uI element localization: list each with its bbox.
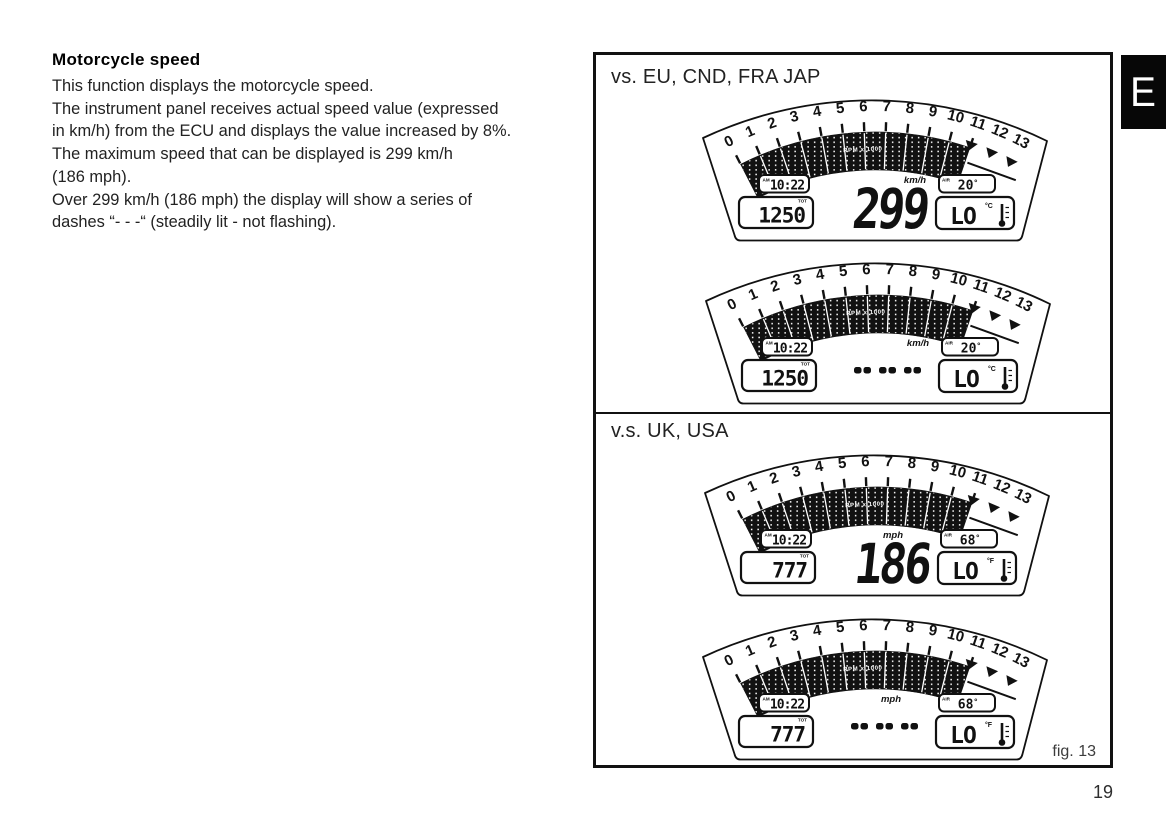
tach-marker-triangle bbox=[986, 666, 998, 677]
tach-scale-number: 6 bbox=[859, 98, 868, 115]
tach-tick bbox=[932, 290, 934, 299]
tach-tick bbox=[844, 479, 845, 488]
tach-scale-number: 9 bbox=[927, 622, 938, 640]
tach-tick bbox=[759, 309, 762, 317]
language-tab-label: E bbox=[1131, 68, 1157, 116]
tach-scale-number: 3 bbox=[788, 108, 800, 127]
instrument-panel: 012345678910111213RPM x 1000AM10:22TOT12… bbox=[704, 257, 1052, 407]
air-temp-label: AIR bbox=[944, 533, 953, 538]
tach-scale-number: 0 bbox=[724, 295, 739, 314]
speed-dash-segment bbox=[876, 723, 884, 730]
tach-scale-number: 0 bbox=[721, 651, 736, 670]
tach-scale-number: 10 bbox=[949, 269, 969, 290]
tach-scale-number: 9 bbox=[927, 103, 938, 121]
tach-scale-number: 10 bbox=[946, 106, 966, 127]
tach-scale-number: 10 bbox=[948, 461, 968, 482]
tach-tick bbox=[777, 138, 780, 147]
tach-scale-number: 7 bbox=[882, 617, 891, 634]
tach-scale-number: 1 bbox=[745, 477, 759, 496]
tach-scale-number: 2 bbox=[767, 469, 780, 488]
tach-marker-triangle bbox=[988, 502, 1000, 513]
tach-tick bbox=[736, 674, 740, 682]
tach-tick bbox=[798, 132, 800, 141]
tach-scale-number: 11 bbox=[971, 276, 991, 297]
speed-dash-segment bbox=[864, 367, 872, 374]
tach-tick bbox=[907, 643, 908, 652]
tach-scale-number: 8 bbox=[908, 263, 918, 281]
tach-marker-triangle bbox=[989, 310, 1001, 321]
tach-scale-number: 10 bbox=[946, 625, 966, 646]
tach-scale-number: 1 bbox=[743, 641, 757, 660]
clock-meridiem-label: AM bbox=[765, 533, 772, 538]
instrument-panel: 012345678910111213RPM x 1000AM10:22TOT77… bbox=[701, 613, 1049, 763]
clock-time: 10:22 bbox=[770, 179, 804, 194]
tach-tick bbox=[931, 482, 933, 491]
tach-scale-number: 9 bbox=[930, 266, 941, 284]
tach-tick bbox=[777, 657, 780, 666]
clock-meridiem-label: AM bbox=[763, 178, 770, 183]
tach-scale-number: 11 bbox=[970, 468, 990, 489]
speed-dash-segment bbox=[851, 723, 859, 730]
coolant-temp-value: LO bbox=[950, 723, 976, 749]
tach-scale-number: 11 bbox=[968, 632, 988, 653]
tach-scale-number: 8 bbox=[905, 100, 915, 118]
tach-tick bbox=[758, 501, 761, 509]
clock-time: 10:22 bbox=[770, 698, 804, 713]
tach-marker-triangle bbox=[1006, 156, 1017, 167]
coolant-temp-unit: °C bbox=[985, 202, 993, 210]
speed-dash-segment bbox=[879, 367, 887, 374]
tach-scale-number: 7 bbox=[882, 98, 891, 115]
section-divider bbox=[596, 412, 1110, 414]
tach-scale-number: 4 bbox=[813, 458, 825, 476]
odometer-value: 777 bbox=[770, 723, 805, 747]
tach-tick bbox=[820, 127, 822, 136]
tach-tick bbox=[801, 295, 803, 304]
odometer-value: 1250 bbox=[761, 367, 808, 391]
speed-unit-label: km/h bbox=[907, 338, 929, 349]
tach-tick bbox=[950, 132, 952, 141]
tach-tick bbox=[929, 646, 931, 655]
section-title-eu: vs. EU, CND, FRA JAP bbox=[611, 66, 821, 89]
tach-scale-number: 11 bbox=[968, 113, 988, 134]
clock-time: 10:22 bbox=[773, 342, 807, 357]
speed-value: 299 bbox=[849, 178, 930, 242]
tach-marker-triangle bbox=[986, 147, 998, 158]
air-temp-label: AIR bbox=[942, 697, 951, 702]
clock-meridiem-label: AM bbox=[766, 341, 773, 346]
tach-marker-triangle bbox=[1008, 511, 1019, 522]
speed-dash-segment bbox=[861, 723, 869, 730]
tach-scale-number: 8 bbox=[907, 455, 917, 473]
coolant-temp-value: LO bbox=[953, 367, 979, 393]
section-title-uk: v.s. UK, USA bbox=[611, 420, 729, 443]
tach-scale-number: 3 bbox=[790, 463, 802, 482]
tach-tick bbox=[822, 482, 824, 491]
odometer-value: 1250 bbox=[758, 204, 805, 228]
speed-value: 186 bbox=[851, 533, 932, 597]
tach-marker-triangle bbox=[1006, 675, 1017, 686]
coolant-temp-unit: °C bbox=[988, 365, 996, 373]
tach-tick bbox=[738, 510, 742, 518]
tach-scale-number: 0 bbox=[723, 487, 738, 506]
tach-tick bbox=[907, 124, 908, 133]
tach-scale-number: 2 bbox=[765, 633, 778, 652]
instrument-panel: 012345678910111213RPM x 1000AM10:22TOT12… bbox=[701, 94, 1049, 244]
figure-box: vs. EU, CND, FRA JAP 012345678910111213R… bbox=[593, 52, 1113, 768]
tach-scale-number: 3 bbox=[791, 271, 803, 290]
speed-dash-segment bbox=[886, 723, 894, 730]
tach-scale-number: 4 bbox=[814, 266, 826, 284]
tach-scale-number: 2 bbox=[768, 277, 781, 296]
clock-meridiem-label: AM bbox=[763, 697, 770, 702]
coolant-temp-unit: °F bbox=[985, 721, 993, 729]
tach-scale-number: 6 bbox=[861, 453, 870, 470]
speed-dash-segment bbox=[889, 367, 897, 374]
instrument-panel-svg: 012345678910111213RPM x 1000AM10:22TOT12… bbox=[704, 257, 1052, 407]
tach-tick bbox=[909, 479, 910, 488]
tach-scale-number: 7 bbox=[884, 453, 893, 470]
air-temp-label: AIR bbox=[942, 178, 951, 183]
tach-scale-number: 0 bbox=[721, 132, 736, 151]
tach-scale-number: 3 bbox=[788, 627, 800, 646]
instrument-panel-svg: 012345678910111213RPM x 1000AM10:22TOT12… bbox=[701, 94, 1049, 244]
tach-scale-number: 1 bbox=[743, 122, 757, 141]
tach-tick bbox=[842, 124, 843, 133]
clock-time: 10:22 bbox=[772, 534, 806, 549]
tach-scale-number: 2 bbox=[765, 114, 778, 133]
speed-unit-label: mph bbox=[881, 694, 901, 705]
speed-dash-segment bbox=[914, 367, 922, 374]
tach-marker-triangle bbox=[1009, 319, 1020, 330]
tach-scale-number: 7 bbox=[885, 261, 894, 278]
speed-dash-segment bbox=[901, 723, 909, 730]
tach-tick bbox=[952, 487, 954, 496]
tach-scale-number: 1 bbox=[746, 285, 760, 304]
instrument-panel-svg: 012345678910111213RPM x 1000AM10:22TOT77… bbox=[703, 449, 1051, 599]
manual-page: Motorcycle speed This function displays … bbox=[0, 0, 1166, 827]
tach-tick bbox=[823, 290, 825, 299]
tach-scale-number: 9 bbox=[929, 458, 940, 476]
tach-tick bbox=[953, 295, 955, 304]
coolant-temp-unit: °F bbox=[987, 557, 995, 565]
tach-tick bbox=[800, 487, 802, 496]
page-title: Motorcycle speed bbox=[52, 50, 612, 70]
coolant-temp-value: LO bbox=[950, 204, 976, 230]
tach-tick bbox=[910, 287, 911, 296]
speed-unit-label: km/h bbox=[904, 175, 926, 186]
tach-tick bbox=[780, 301, 783, 310]
figure-caption: fig. 13 bbox=[1052, 743, 1096, 761]
tach-scale-number: 4 bbox=[811, 622, 823, 640]
tach-tick bbox=[929, 127, 931, 136]
article-column: Motorcycle speed This function displays … bbox=[52, 50, 612, 234]
tach-tick bbox=[756, 146, 759, 154]
tach-tick bbox=[845, 287, 846, 296]
coolant-temp-value: LO bbox=[952, 559, 978, 585]
tach-tick bbox=[820, 646, 822, 655]
air-temp-label: AIR bbox=[945, 341, 954, 346]
speed-dash-segment bbox=[911, 723, 919, 730]
tach-tick bbox=[950, 651, 952, 660]
tach-scale-number: 6 bbox=[859, 617, 868, 634]
tach-tick bbox=[756, 665, 759, 673]
tach-tick bbox=[739, 318, 743, 326]
body-text: This function displays the motorcycle sp… bbox=[52, 75, 612, 234]
speed-dash-segment bbox=[854, 367, 862, 374]
language-tab: E bbox=[1121, 55, 1166, 129]
instrument-panel-svg: 012345678910111213RPM x 1000AM10:22TOT77… bbox=[701, 613, 1049, 763]
tach-tick bbox=[779, 493, 782, 502]
tach-scale-number: 8 bbox=[905, 619, 915, 637]
speed-unit-label: mph bbox=[883, 530, 903, 541]
tach-scale-number: 4 bbox=[811, 103, 823, 121]
page-number: 19 bbox=[1093, 782, 1113, 803]
tach-tick bbox=[798, 651, 800, 660]
odometer-value: 777 bbox=[772, 559, 807, 583]
tach-scale-number: 6 bbox=[862, 261, 871, 278]
speed-dash-segment bbox=[904, 367, 912, 374]
tach-tick bbox=[842, 643, 843, 652]
tach-tick bbox=[736, 155, 740, 163]
instrument-panel: 012345678910111213RPM x 1000AM10:22TOT77… bbox=[703, 449, 1051, 599]
